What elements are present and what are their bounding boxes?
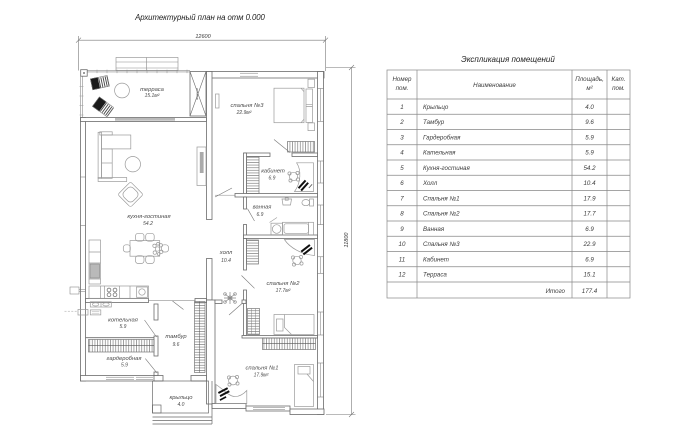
- svg-text:Экспликация помещений: Экспликация помещений: [461, 55, 555, 64]
- svg-text:Терраса: Терраса: [423, 272, 447, 279]
- svg-text:54.2: 54.2: [143, 221, 153, 227]
- svg-text:22.9м²: 22.9м²: [236, 110, 252, 116]
- svg-text:177.4: 177.4: [582, 288, 598, 295]
- svg-text:Кат.: Кат.: [612, 76, 626, 83]
- svg-text:крыльцо: крыльцо: [169, 395, 193, 401]
- svg-text:3: 3: [400, 135, 404, 142]
- svg-text:5: 5: [400, 165, 404, 172]
- svg-text:Архитектурный план на отм 0.00: Архитектурный план на отм 0.000: [134, 13, 265, 22]
- svg-text:спальня №1: спальня №1: [246, 366, 279, 372]
- svg-text:9.6: 9.6: [173, 342, 180, 348]
- svg-text:7: 7: [400, 195, 404, 202]
- svg-text:спальня №2: спальня №2: [267, 281, 301, 287]
- svg-text:8: 8: [400, 211, 404, 218]
- svg-text:11800: 11800: [344, 232, 350, 248]
- svg-text:Площадь,: Площадь,: [575, 76, 604, 83]
- svg-text:Итого: Итого: [546, 288, 566, 295]
- svg-text:кабинет: кабинет: [261, 169, 285, 175]
- svg-text:Наименование: Наименование: [473, 82, 516, 89]
- svg-text:Номер: Номер: [392, 76, 412, 83]
- svg-text:6.9: 6.9: [585, 256, 594, 263]
- svg-text:10.4: 10.4: [221, 258, 231, 264]
- svg-text:Кательная: Кательная: [423, 150, 456, 157]
- svg-text:Ванная: Ванная: [423, 226, 445, 233]
- svg-text:4.0: 4.0: [178, 402, 185, 408]
- svg-text:17.7: 17.7: [583, 211, 596, 218]
- svg-text:15.1: 15.1: [583, 272, 595, 279]
- svg-text:дымоход: дымоход: [195, 88, 199, 101]
- svg-text:10.4: 10.4: [583, 180, 596, 187]
- svg-text:гардеробная: гардеробная: [107, 356, 142, 362]
- svg-text:6: 6: [400, 180, 404, 187]
- svg-text:12: 12: [399, 272, 406, 279]
- svg-text:15.1м²: 15.1м²: [145, 93, 160, 99]
- svg-text:2: 2: [399, 119, 404, 126]
- svg-text:5.9: 5.9: [120, 324, 127, 330]
- svg-text:6.9: 6.9: [585, 226, 594, 233]
- svg-text:Гардеробная: Гардеробная: [423, 135, 461, 142]
- svg-text:4.0: 4.0: [585, 104, 594, 111]
- svg-text:котельная: котельная: [108, 318, 138, 324]
- svg-text:1: 1: [400, 104, 403, 111]
- svg-text:10: 10: [399, 241, 406, 248]
- svg-text:пом.: пом.: [396, 85, 409, 92]
- svg-text:Спальня №3: Спальня №3: [423, 241, 460, 248]
- svg-text:4: 4: [400, 150, 404, 157]
- svg-text:Кабинет: Кабинет: [423, 256, 449, 263]
- svg-text:м²: м²: [586, 85, 593, 92]
- svg-text:спальня №3: спальня №3: [231, 103, 265, 109]
- svg-text:17.9: 17.9: [583, 195, 596, 202]
- svg-text:5.9: 5.9: [585, 150, 594, 157]
- svg-text:Спальня №2: Спальня №2: [423, 211, 460, 218]
- svg-text:6.9: 6.9: [257, 212, 264, 218]
- svg-text:Спальня №1: Спальня №1: [423, 195, 460, 202]
- svg-text:17.7м²: 17.7м²: [276, 288, 291, 294]
- svg-text:ванная: ванная: [253, 205, 272, 211]
- svg-text:9: 9: [400, 226, 404, 233]
- svg-text:Кухня-гостиная: Кухня-гостиная: [423, 165, 470, 172]
- svg-text:кухня-гостиная: кухня-гостиная: [127, 214, 170, 220]
- svg-text:5.9: 5.9: [585, 135, 594, 142]
- svg-text:Холл: Холл: [422, 180, 438, 187]
- svg-text:пом.: пом.: [612, 85, 625, 92]
- svg-text:11: 11: [399, 256, 405, 263]
- svg-text:54.2: 54.2: [583, 165, 596, 172]
- svg-text:17.9м²: 17.9м²: [254, 373, 269, 379]
- svg-text:холл: холл: [219, 250, 233, 256]
- svg-text:5.9: 5.9: [121, 363, 128, 369]
- svg-text:9.6: 9.6: [585, 119, 594, 126]
- svg-text:12600: 12600: [195, 34, 211, 40]
- svg-text:6.9: 6.9: [269, 176, 276, 182]
- svg-text:Тамбур: Тамбур: [423, 119, 445, 126]
- svg-text:тамбур: тамбур: [165, 334, 187, 340]
- svg-text:22.9: 22.9: [582, 241, 596, 248]
- svg-text:Крыльцо: Крыльцо: [423, 104, 449, 111]
